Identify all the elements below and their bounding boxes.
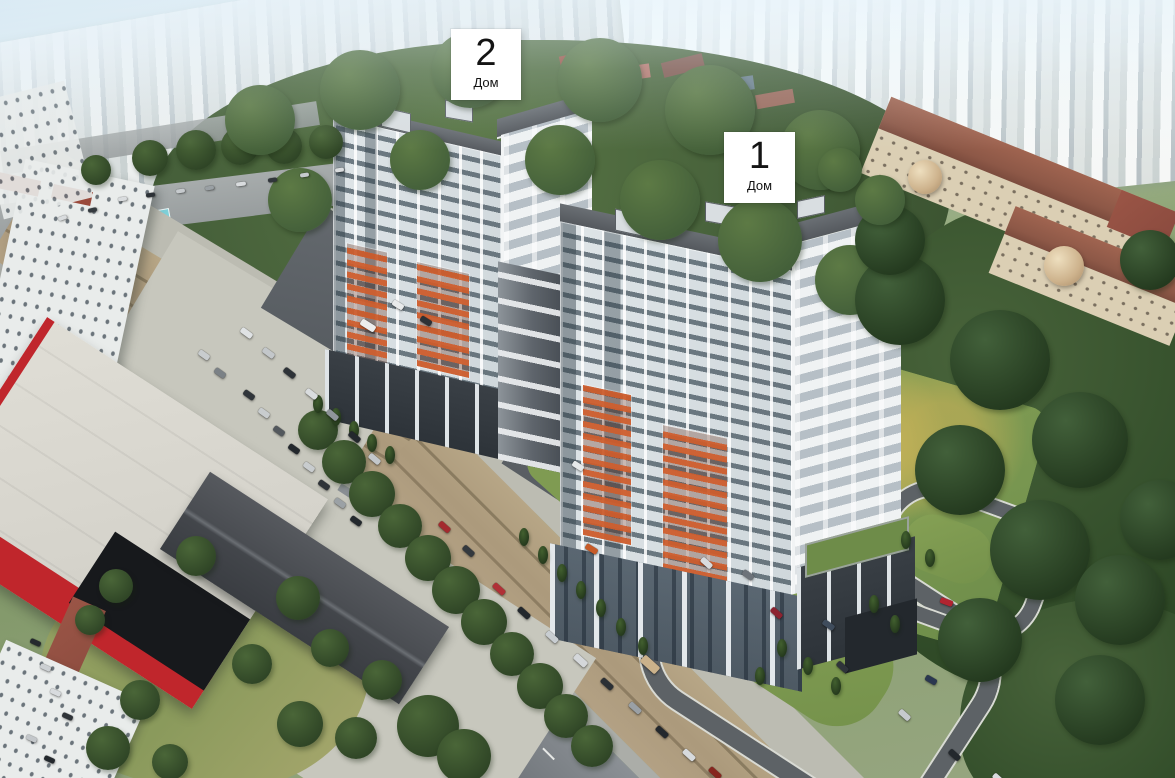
cypress-tree: [557, 564, 567, 582]
boulevard-lower: [256, 382, 907, 778]
house2-building: [325, 80, 605, 440]
car: [236, 181, 246, 186]
podium-green-roof: [805, 516, 909, 578]
aerial-render: 2 Дом 1 Дом: [0, 0, 1175, 778]
historic-building-wing: [989, 206, 1175, 346]
house1-forecourt: [502, 332, 923, 682]
small-house-roof: [18, 597, 106, 735]
lawn-right: [733, 341, 1052, 653]
tree: [1055, 655, 1145, 745]
tree: [544, 694, 588, 738]
house1-bulkhead: [797, 195, 825, 219]
tree: [718, 198, 802, 282]
tree: [268, 168, 332, 232]
forest-right: [835, 205, 1175, 695]
podium-garage: [845, 598, 917, 673]
tree: [1075, 555, 1165, 645]
tree: [855, 205, 925, 275]
driveway-loop: [613, 468, 1026, 778]
car: [39, 663, 51, 672]
car: [640, 654, 661, 674]
house2-side-facade: [501, 109, 592, 385]
tree: [815, 245, 885, 315]
cypress-tree: [777, 639, 787, 657]
house1-side-facade: [792, 215, 901, 594]
car: [628, 701, 642, 715]
city-skyline-right: [619, 0, 1175, 237]
historic-roof: [878, 97, 1169, 241]
parking-lot: [101, 231, 410, 499]
car: [61, 712, 73, 721]
billboard: [145, 208, 171, 224]
car: [302, 461, 315, 473]
historic-turret: [1044, 246, 1084, 286]
house1-orange-accent: [583, 385, 631, 545]
market-red-facade: [0, 493, 214, 709]
car: [300, 172, 309, 177]
tree: [938, 598, 1022, 682]
historic-building-main: [861, 97, 1170, 285]
car: [741, 569, 754, 581]
tree: [86, 726, 130, 770]
grass-bottom-left: [40, 555, 370, 778]
tree: [81, 155, 111, 185]
highrise-left: [0, 159, 155, 583]
house2-bulkhead: [445, 100, 473, 123]
tree: [405, 535, 451, 581]
tree: [176, 536, 216, 576]
house2-front-facade: [333, 117, 501, 394]
tree: [571, 725, 613, 767]
car: [58, 215, 68, 222]
house2-orange-accent: [347, 243, 387, 370]
driveway-loop-small: [853, 466, 1068, 658]
tree: [335, 717, 377, 759]
city-slab-topleft: [0, 81, 93, 220]
cypress-tree: [576, 581, 586, 599]
car: [992, 772, 1006, 778]
car: [333, 497, 346, 509]
tree: [1120, 230, 1175, 290]
house1-storefront-base: [550, 543, 802, 692]
tree: [277, 701, 323, 747]
tree: [320, 50, 400, 130]
car: [118, 196, 127, 201]
tree: [349, 471, 395, 517]
car: [359, 318, 376, 332]
stair-annex: [498, 261, 560, 472]
historic-roof: [1004, 206, 1175, 307]
car: [368, 453, 382, 466]
cypress-tree: [831, 677, 841, 695]
house1-label: 1 Дом: [724, 132, 795, 203]
cypress-tree: [596, 599, 606, 617]
car: [88, 207, 98, 213]
car: [708, 766, 722, 778]
car: [205, 185, 214, 190]
house-roof: [611, 63, 651, 82]
tree: [232, 644, 272, 684]
house2-base-side: [503, 343, 593, 427]
house1-bulkhead: [705, 201, 735, 226]
car: [213, 367, 226, 379]
car: [462, 544, 476, 557]
city-skyline-left: [0, 0, 743, 269]
car: [317, 479, 330, 491]
tree: [75, 605, 105, 635]
tree: [990, 500, 1090, 600]
tree: [276, 576, 320, 620]
car: [391, 299, 404, 310]
house2-roof: [333, 103, 501, 160]
tree: [855, 255, 945, 345]
tree: [132, 140, 168, 176]
median-green-strip: [518, 431, 748, 644]
car: [176, 188, 185, 193]
tree: [152, 744, 188, 778]
car: [924, 674, 937, 685]
car: [492, 582, 506, 596]
car: [43, 755, 55, 764]
car: [770, 606, 784, 619]
boulevard-upper: [0, 148, 569, 684]
car: [239, 327, 253, 339]
cypress-tree: [755, 667, 765, 685]
historic-house: [1107, 190, 1175, 250]
tree: [311, 629, 349, 667]
tree: [1032, 392, 1128, 488]
car: [600, 677, 614, 691]
car: [573, 653, 589, 668]
cypress-tree: [890, 615, 900, 633]
car: [305, 388, 319, 401]
highrise-roof-cap: [51, 184, 93, 206]
tree: [176, 130, 216, 170]
car: [655, 725, 669, 739]
market-building: [0, 317, 328, 709]
car: [948, 748, 962, 761]
tree: [855, 175, 905, 225]
tree: [390, 130, 450, 190]
car: [545, 630, 559, 644]
car: [836, 660, 850, 673]
tree: [517, 663, 563, 709]
tree: [915, 425, 1005, 515]
cypress-tree: [616, 618, 626, 636]
house-roof: [559, 48, 605, 73]
car: [25, 734, 37, 743]
tree: [378, 504, 422, 548]
tree: [620, 160, 700, 240]
tree: [99, 569, 133, 603]
tree: [221, 127, 259, 165]
car: [419, 315, 432, 326]
tree: [950, 310, 1050, 410]
tree: [490, 632, 534, 676]
park-trees: [150, 40, 950, 370]
car: [349, 515, 362, 527]
car: [682, 748, 696, 762]
tree: [818, 148, 862, 192]
crosswalk: [47, 226, 79, 245]
cypress-layer: [0, 0, 1175, 778]
tree: [266, 128, 302, 164]
upper-street: [0, 101, 320, 175]
car: [49, 688, 61, 697]
car: [242, 389, 255, 401]
house-roof: [713, 75, 755, 94]
car: [821, 619, 835, 631]
car: [517, 606, 531, 620]
house1-podium: [797, 536, 915, 670]
tree: [225, 85, 295, 155]
cypress-tree: [385, 446, 395, 464]
house-roof: [755, 89, 795, 109]
cypress-tree: [519, 528, 529, 546]
house1-front-facade: [560, 221, 792, 600]
loop-island-small: [896, 506, 1000, 591]
car: [287, 443, 300, 455]
tree: [322, 440, 366, 484]
tree: [525, 125, 595, 195]
car: [584, 543, 598, 555]
historic-windows: [989, 235, 1175, 345]
car: [571, 460, 584, 471]
car-layer: [0, 0, 1175, 778]
cross-street: [0, 158, 381, 247]
loop-island: [696, 551, 912, 746]
cypress-tree: [638, 637, 648, 655]
car: [197, 349, 210, 361]
market-loading-dock: [69, 531, 250, 690]
house-roof: [661, 53, 705, 78]
car: [261, 347, 275, 359]
car: [438, 520, 452, 533]
house2-number: 2: [451, 31, 521, 75]
cypress-tree: [313, 395, 323, 413]
house2-orange-accent: [417, 262, 469, 378]
tree: [397, 695, 459, 757]
house2-caption: Дом: [451, 76, 521, 90]
car: [257, 407, 270, 419]
cypress-tree: [349, 421, 359, 439]
tree: [362, 660, 402, 700]
highrise-roof-cap: [0, 171, 41, 196]
car: [283, 367, 297, 380]
historic-windows: [861, 130, 1156, 285]
car: [268, 177, 277, 182]
market-red-edge: [0, 317, 55, 532]
tree: [432, 566, 480, 614]
cypress-tree: [925, 549, 935, 567]
car: [29, 638, 41, 647]
tree: [437, 729, 491, 778]
car: [335, 167, 344, 172]
car: [348, 431, 362, 444]
car: [939, 597, 953, 607]
tree-layer: [0, 0, 1175, 778]
house2-bulkhead: [381, 107, 411, 134]
white-building-corner: [0, 640, 148, 778]
cypress-tree: [538, 546, 548, 564]
cypress-tree: [803, 657, 813, 675]
tree: [461, 599, 507, 645]
concrete-yard: [94, 424, 596, 778]
historic-turret: [908, 160, 942, 194]
tree: [1120, 480, 1175, 560]
tree: [298, 410, 338, 450]
house2-forecourt: [261, 203, 615, 483]
car: [898, 708, 912, 721]
market-roof: [0, 317, 328, 709]
cypress-tree: [331, 408, 341, 426]
house1-orange-accent: [663, 425, 727, 607]
car: [326, 409, 340, 422]
house1-roof-side: [790, 196, 898, 247]
house2-label: 2 Дом: [451, 29, 521, 100]
atmospheric-haze: [0, 0, 1175, 160]
house1-roof: [560, 203, 792, 272]
house1-caption: Дом: [724, 179, 795, 193]
forest-bottom-right: [960, 600, 1175, 778]
tree: [309, 125, 343, 159]
cypress-tree: [901, 531, 911, 549]
cypress-tree: [367, 434, 377, 452]
cypress-tree: [869, 595, 879, 613]
house1-bulkhead: [615, 209, 647, 238]
car: [272, 425, 285, 437]
glass-annex: [0, 413, 91, 582]
tree: [558, 38, 642, 122]
house2-base: [325, 349, 507, 461]
dark-roof-building: [160, 472, 449, 704]
tree: [120, 680, 160, 720]
house1-building: [545, 170, 905, 670]
car: [700, 556, 714, 569]
house1-number: 1: [724, 134, 795, 178]
car: [146, 192, 155, 197]
